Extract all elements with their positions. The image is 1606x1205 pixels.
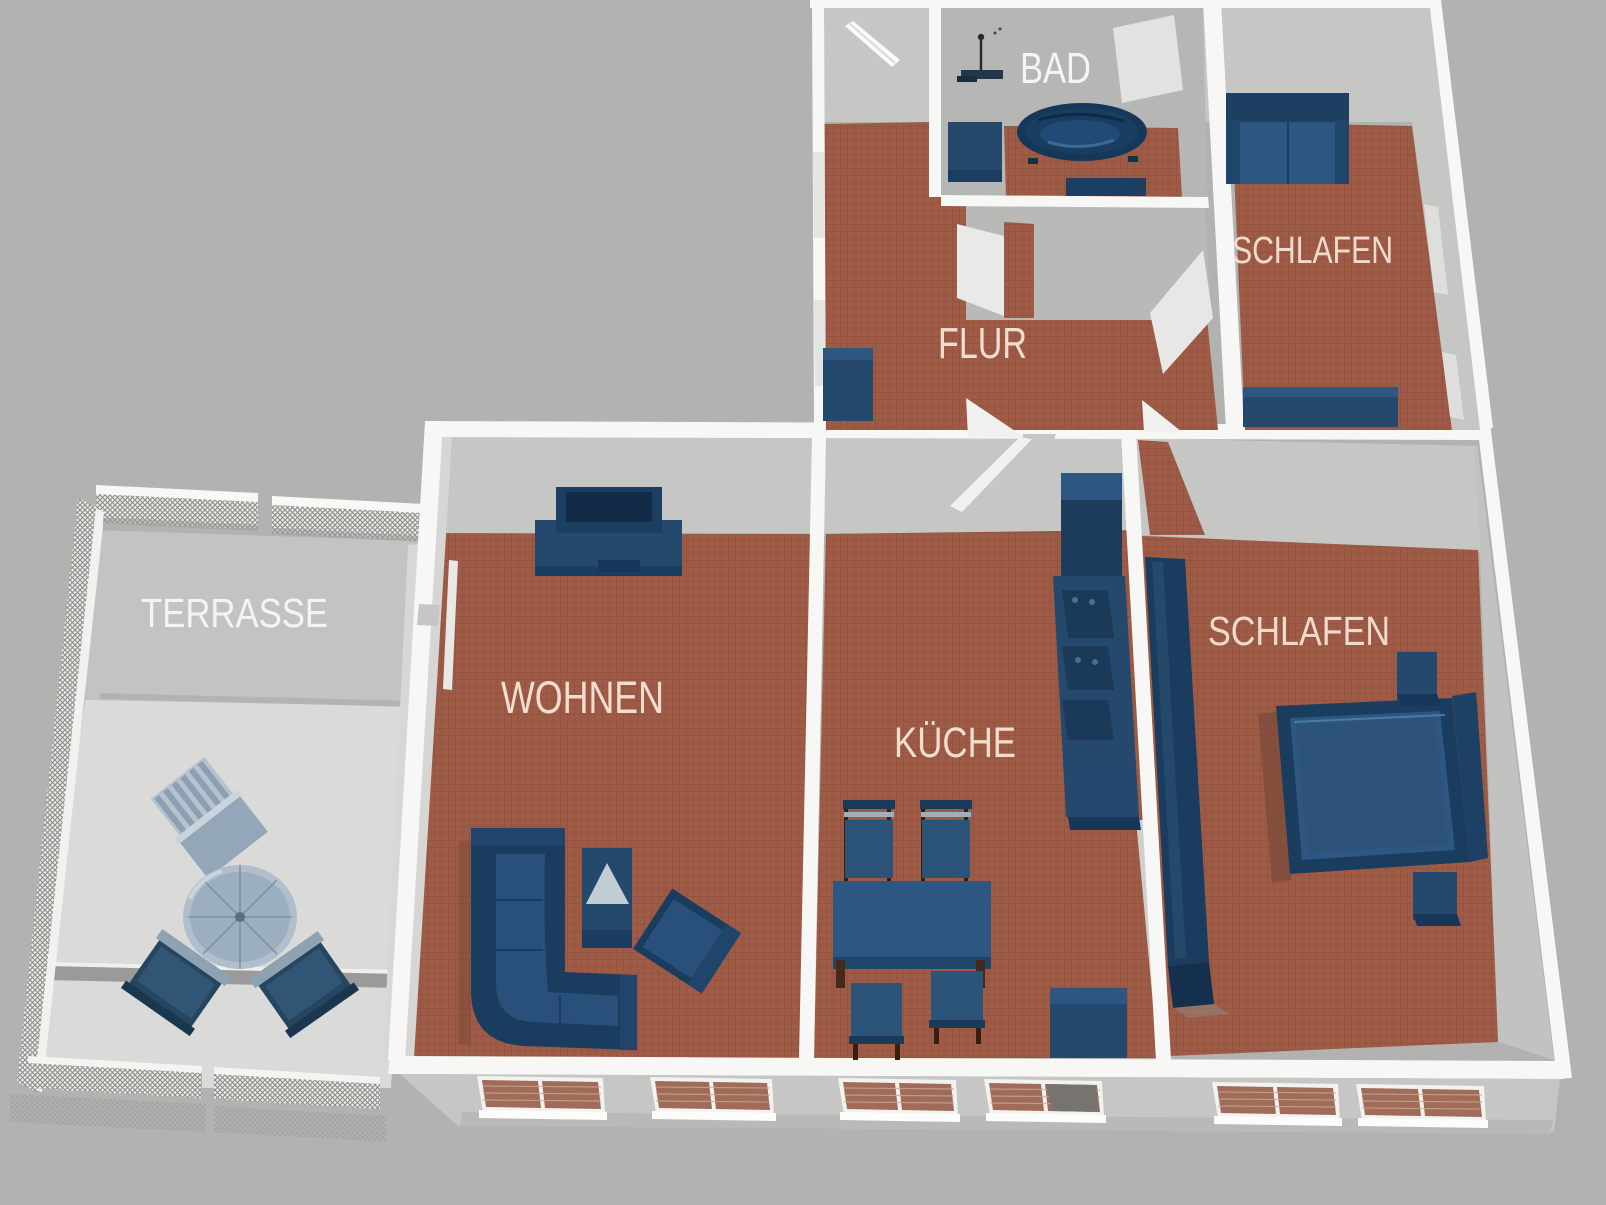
svg-text:WOHNEN: WOHNEN (501, 672, 664, 723)
svg-text:TERRASSE: TERRASSE (141, 590, 328, 636)
svg-text:SCHLAFEN: SCHLAFEN (1232, 230, 1393, 272)
svg-text:SCHLAFEN: SCHLAFEN (1208, 608, 1390, 654)
svg-text:KÜCHE: KÜCHE (894, 719, 1016, 767)
svg-text:FLUR: FLUR (938, 319, 1027, 368)
svg-text:BAD: BAD (1020, 44, 1091, 93)
